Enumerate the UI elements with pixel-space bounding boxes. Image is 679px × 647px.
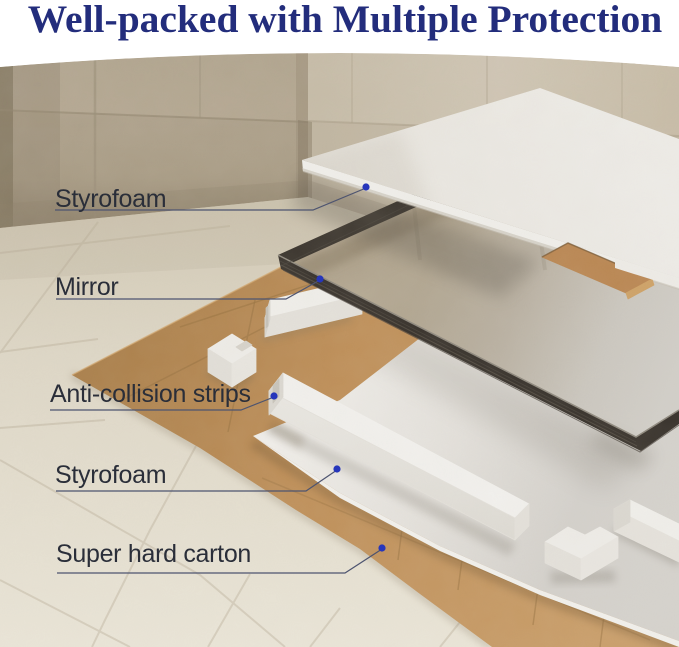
svg-text:Well-packed with Multiple Prot: Well-packed with Multiple Protection [28, 0, 663, 41]
svg-text:Super hard carton: Super hard carton [56, 540, 251, 568]
svg-text:Mirror: Mirror [55, 273, 118, 301]
svg-text:Styrofoam: Styrofoam [55, 461, 166, 489]
svg-text:Anti-collision strips: Anti-collision strips [50, 380, 251, 408]
svg-text:Styrofoam: Styrofoam [55, 185, 166, 213]
